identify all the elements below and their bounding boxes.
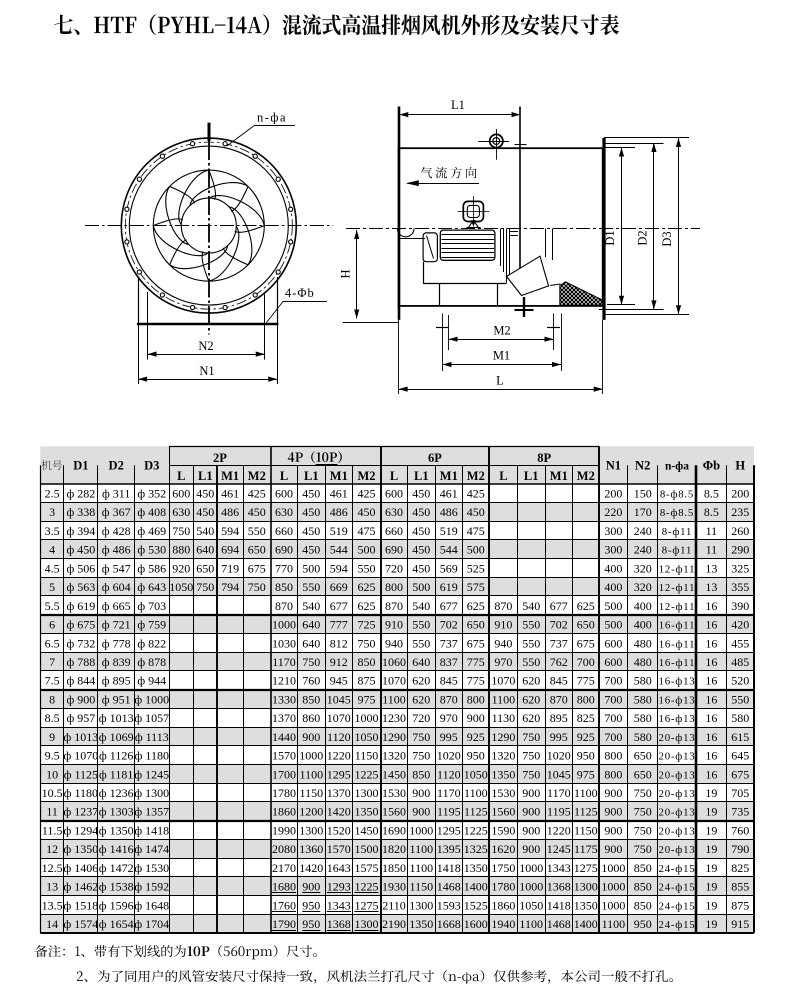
svg-text:700: 700: [604, 730, 622, 744]
svg-text:1370: 1370: [327, 786, 351, 800]
svg-text:461: 461: [221, 487, 239, 501]
svg-text:860: 860: [302, 711, 320, 725]
svg-text:575: 575: [467, 580, 485, 594]
svg-text:ф 675: ф 675: [67, 618, 96, 632]
svg-text:1468: 1468: [437, 880, 461, 894]
svg-text:619: 619: [440, 580, 458, 594]
svg-text:594: 594: [330, 561, 348, 575]
svg-text:550: 550: [522, 655, 540, 669]
svg-text:837: 837: [440, 655, 458, 669]
svg-text:1368: 1368: [327, 917, 351, 931]
svg-text:ф 1126: ф 1126: [99, 749, 133, 763]
svg-text:16: 16: [705, 730, 717, 744]
svg-text:1860: 1860: [272, 805, 296, 819]
svg-text:13: 13: [705, 561, 717, 575]
svg-text:10.5: 10.5: [42, 786, 63, 800]
svg-text:1420: 1420: [299, 861, 323, 875]
svg-text:13: 13: [705, 580, 717, 594]
svg-text:1643: 1643: [327, 861, 351, 875]
svg-text:19: 19: [705, 898, 717, 912]
svg-text:ф 547: ф 547: [102, 561, 131, 575]
svg-text:11: 11: [46, 805, 58, 819]
svg-text:625: 625: [358, 580, 376, 594]
svg-text:1440: 1440: [272, 730, 296, 744]
svg-text:1050: 1050: [169, 580, 193, 594]
svg-text:n-фa: n-фa: [257, 111, 287, 125]
svg-text:450: 450: [196, 487, 214, 501]
svg-text:ф 1592: ф 1592: [134, 880, 169, 894]
svg-text:1100: 1100: [464, 786, 488, 800]
svg-text:1350: 1350: [409, 917, 433, 931]
svg-text:L: L: [390, 469, 398, 483]
svg-text:ф 665: ф 665: [102, 599, 131, 613]
svg-text:420: 420: [731, 618, 749, 632]
svg-text:ф 1180: ф 1180: [64, 786, 98, 800]
svg-text:260: 260: [731, 524, 749, 538]
svg-text:ф 506: ф 506: [67, 561, 96, 575]
svg-text:ф 1013: ф 1013: [64, 730, 99, 744]
svg-text:1300: 1300: [409, 898, 433, 912]
svg-text:2170: 2170: [272, 861, 296, 875]
svg-text:ф 1070: ф 1070: [64, 749, 99, 763]
svg-text:1000: 1000: [299, 749, 323, 763]
svg-text:N1: N1: [606, 459, 621, 473]
svg-text:ф 311: ф 311: [102, 487, 130, 501]
svg-text:500: 500: [467, 543, 485, 557]
svg-text:950: 950: [467, 749, 485, 763]
svg-text:940: 940: [385, 636, 403, 650]
svg-text:24-ф15: 24-ф15: [659, 863, 696, 875]
svg-text:544: 544: [330, 543, 348, 557]
svg-text:16-ф13: 16-ф13: [659, 676, 696, 688]
svg-text:1368: 1368: [547, 880, 571, 894]
svg-text:1400: 1400: [574, 917, 598, 931]
svg-text:995: 995: [550, 730, 568, 744]
svg-text:M1: M1: [330, 469, 348, 483]
svg-text:2.5: 2.5: [45, 487, 60, 501]
svg-text:ф 1294: ф 1294: [64, 824, 99, 838]
svg-text:735: 735: [731, 805, 749, 819]
svg-text:ф 1357: ф 1357: [134, 805, 169, 819]
svg-text:775: 775: [467, 674, 485, 688]
svg-text:640: 640: [412, 655, 430, 669]
svg-text:400: 400: [634, 618, 652, 632]
svg-text:600: 600: [385, 487, 403, 501]
svg-text:1300: 1300: [574, 880, 598, 894]
svg-text:1420: 1420: [327, 805, 351, 819]
svg-text:ф 878: ф 878: [137, 655, 166, 669]
svg-text:650: 650: [467, 618, 485, 632]
svg-text:1000: 1000: [519, 880, 543, 894]
svg-text:750: 750: [634, 805, 652, 819]
svg-text:1000: 1000: [355, 711, 379, 725]
svg-text:M2: M2: [357, 469, 375, 483]
svg-text:24-ф15: 24-ф15: [659, 882, 696, 894]
svg-text:762: 762: [550, 655, 568, 669]
svg-text:1050: 1050: [355, 730, 379, 744]
svg-text:900: 900: [467, 711, 485, 725]
svg-text:580: 580: [634, 692, 652, 706]
svg-text:13.5: 13.5: [42, 898, 63, 912]
svg-text:3: 3: [49, 505, 55, 519]
svg-text:ф 1418: ф 1418: [134, 824, 169, 838]
svg-text:16-ф13: 16-ф13: [659, 713, 696, 725]
svg-text:ф 1236: ф 1236: [99, 786, 134, 800]
svg-text:1150: 1150: [574, 824, 598, 838]
svg-text:8-ф11: 8-ф11: [662, 545, 692, 557]
svg-text:L: L: [496, 373, 504, 387]
svg-text:8P: 8P: [537, 451, 551, 465]
svg-text:970: 970: [440, 711, 458, 725]
svg-text:975: 975: [577, 767, 595, 781]
svg-text:390: 390: [731, 599, 749, 613]
svg-text:6: 6: [49, 618, 55, 632]
svg-text:720: 720: [385, 561, 403, 575]
svg-text:1175: 1175: [574, 842, 598, 856]
svg-text:450: 450: [412, 487, 430, 501]
svg-text:1320: 1320: [382, 749, 406, 763]
svg-text:519: 519: [440, 524, 458, 538]
svg-text:12: 12: [46, 842, 58, 856]
svg-text:ф 1596: ф 1596: [99, 898, 134, 912]
svg-text:630: 630: [385, 505, 403, 519]
svg-text:L: L: [177, 469, 185, 483]
svg-text:850: 850: [358, 655, 376, 669]
svg-text:ф 428: ф 428: [102, 524, 131, 538]
svg-text:12.5: 12.5: [42, 861, 63, 875]
svg-text:ф 759: ф 759: [137, 618, 166, 632]
svg-text:540: 540: [412, 599, 430, 613]
svg-text:750: 750: [248, 580, 266, 594]
svg-text:1570: 1570: [327, 842, 351, 856]
svg-text:580: 580: [634, 730, 652, 744]
svg-text:ф 1416: ф 1416: [99, 842, 134, 856]
svg-text:702: 702: [440, 618, 458, 632]
svg-text:Φb: Φb: [703, 459, 720, 473]
svg-text:11: 11: [706, 543, 718, 557]
svg-text:ф 788: ф 788: [67, 655, 96, 669]
svg-text:1343: 1343: [547, 861, 571, 875]
svg-text:1780: 1780: [272, 786, 296, 800]
svg-text:L: L: [280, 469, 288, 483]
svg-text:850: 850: [634, 898, 652, 912]
svg-text:485: 485: [731, 655, 749, 669]
svg-text:150: 150: [634, 487, 652, 501]
svg-text:19: 19: [705, 842, 717, 856]
svg-text:20-ф13: 20-ф13: [659, 732, 696, 744]
svg-text:ф 1303: ф 1303: [99, 805, 134, 819]
svg-text:1170: 1170: [547, 786, 571, 800]
svg-text:1220: 1220: [547, 824, 571, 838]
svg-text:2080: 2080: [272, 842, 296, 856]
svg-text:ф 1406: ф 1406: [64, 861, 99, 875]
svg-text:650: 650: [634, 767, 652, 781]
svg-text:615: 615: [731, 730, 749, 744]
svg-text:1100: 1100: [410, 842, 434, 856]
svg-text:1275: 1275: [574, 861, 598, 875]
svg-text:750: 750: [522, 767, 540, 781]
svg-text:20-ф13: 20-ф13: [659, 826, 696, 838]
svg-text:1860: 1860: [491, 898, 515, 912]
svg-text:ф 1013: ф 1013: [99, 711, 134, 725]
svg-text:900: 900: [604, 805, 622, 819]
svg-text:900: 900: [522, 824, 540, 838]
svg-text:475: 475: [358, 524, 376, 538]
svg-text:200: 200: [731, 487, 749, 501]
svg-text:1400: 1400: [464, 880, 488, 894]
svg-text:ф 1113: ф 1113: [135, 730, 169, 744]
svg-text:D2: D2: [109, 459, 124, 473]
svg-text:794: 794: [221, 580, 239, 594]
svg-text:11: 11: [706, 524, 718, 538]
svg-text:M2: M2: [248, 469, 266, 483]
svg-text:550: 550: [248, 524, 266, 538]
svg-text:620: 620: [522, 711, 540, 725]
svg-text:550: 550: [302, 580, 320, 594]
svg-text:1275: 1275: [355, 898, 379, 912]
svg-text:630: 630: [172, 505, 190, 519]
svg-text:825: 825: [577, 711, 595, 725]
svg-text:950: 950: [302, 898, 320, 912]
svg-text:M1: M1: [221, 469, 239, 483]
svg-text:855: 855: [731, 880, 749, 894]
svg-text:450: 450: [302, 505, 320, 519]
svg-text:1343: 1343: [327, 898, 351, 912]
svg-text:677: 677: [550, 599, 568, 613]
svg-text:1020: 1020: [437, 749, 461, 763]
svg-text:1000: 1000: [601, 880, 625, 894]
svg-text:580: 580: [634, 674, 652, 688]
svg-text:1170: 1170: [437, 786, 461, 800]
svg-text:ф 367: ф 367: [102, 505, 131, 519]
svg-text:1225: 1225: [355, 880, 379, 894]
svg-text:400: 400: [604, 561, 622, 575]
svg-text:870: 870: [494, 599, 512, 613]
svg-text:1525: 1525: [464, 898, 488, 912]
svg-text:12-ф11: 12-ф11: [659, 601, 696, 613]
svg-text:620: 620: [412, 674, 430, 688]
svg-text:550: 550: [358, 561, 376, 575]
svg-text:870: 870: [550, 692, 568, 706]
svg-text:675: 675: [731, 767, 749, 781]
svg-text:486: 486: [221, 505, 239, 519]
svg-text:ф 394: ф 394: [67, 524, 96, 538]
svg-text:625: 625: [577, 599, 595, 613]
svg-text:900: 900: [412, 786, 430, 800]
svg-text:480: 480: [634, 636, 652, 650]
svg-text:ф 1654: ф 1654: [99, 917, 134, 931]
svg-text:5: 5: [49, 580, 55, 594]
svg-text:ф 1181: ф 1181: [99, 767, 133, 781]
svg-text:870: 870: [440, 692, 458, 706]
svg-text:1150: 1150: [300, 786, 324, 800]
svg-text:750: 750: [634, 786, 652, 800]
svg-text:N2: N2: [198, 339, 213, 353]
svg-text:775: 775: [577, 674, 595, 688]
svg-text:ф 619: ф 619: [67, 599, 96, 613]
svg-text:1045: 1045: [327, 692, 351, 706]
svg-text:1530: 1530: [382, 786, 406, 800]
svg-text:550: 550: [412, 636, 430, 650]
svg-text:ф 282: ф 282: [67, 487, 96, 501]
svg-text:ф 1518: ф 1518: [64, 898, 99, 912]
svg-text:690: 690: [275, 543, 293, 557]
svg-text:1210: 1210: [272, 674, 296, 688]
svg-text:550: 550: [522, 636, 540, 650]
svg-text:1070: 1070: [327, 711, 351, 725]
svg-text:1290: 1290: [491, 730, 515, 744]
svg-text:640: 640: [302, 618, 320, 632]
svg-text:1100: 1100: [410, 861, 434, 875]
svg-text:1125: 1125: [574, 805, 598, 819]
svg-text:895: 895: [550, 711, 568, 725]
svg-text:ф 1704: ф 1704: [134, 917, 169, 931]
svg-text:540: 540: [196, 524, 214, 538]
svg-text:945: 945: [330, 674, 348, 688]
svg-text:900: 900: [522, 805, 540, 819]
svg-text:702: 702: [550, 618, 568, 632]
svg-text:19: 19: [705, 805, 717, 819]
svg-text:500: 500: [358, 543, 376, 557]
svg-text:16: 16: [705, 767, 717, 781]
svg-text:650: 650: [634, 749, 652, 763]
svg-text:650: 650: [248, 543, 266, 557]
svg-text:16: 16: [705, 692, 717, 706]
svg-text:461: 461: [330, 487, 348, 501]
svg-text:694: 694: [221, 543, 239, 557]
svg-text:M2: M2: [577, 469, 595, 483]
svg-text:900: 900: [302, 880, 320, 894]
svg-text:1350: 1350: [574, 898, 598, 912]
svg-text:1295: 1295: [437, 824, 461, 838]
svg-text:19: 19: [705, 861, 717, 875]
svg-text:ф 721: ф 721: [102, 618, 131, 632]
svg-text:640: 640: [302, 636, 320, 650]
svg-text:20-ф13: 20-ф13: [659, 751, 696, 763]
svg-text:ф 1057: ф 1057: [134, 711, 169, 725]
svg-text:1790: 1790: [272, 917, 296, 931]
svg-text:ф 1180: ф 1180: [135, 749, 169, 763]
svg-text:325: 325: [731, 561, 749, 575]
svg-text:20-ф13: 20-ф13: [659, 769, 696, 781]
svg-text:925: 925: [467, 730, 485, 744]
svg-text:912: 912: [330, 655, 348, 669]
svg-text:1300: 1300: [355, 917, 379, 931]
svg-text:16: 16: [705, 711, 717, 725]
svg-text:ф 822: ф 822: [137, 636, 166, 650]
svg-text:1750: 1750: [491, 861, 515, 875]
svg-text:11.5: 11.5: [42, 824, 63, 838]
svg-text:1120: 1120: [437, 767, 461, 781]
svg-text:N2: N2: [635, 459, 650, 473]
svg-text:D3: D3: [660, 231, 674, 246]
svg-text:770: 770: [275, 561, 293, 575]
svg-text:13: 13: [46, 880, 58, 894]
svg-text:320: 320: [634, 580, 652, 594]
svg-text:6P: 6P: [428, 451, 442, 465]
svg-text:1360: 1360: [299, 842, 323, 856]
svg-text:ф 957: ф 957: [67, 711, 96, 725]
svg-text:920: 920: [172, 561, 190, 575]
svg-text:24-ф15: 24-ф15: [659, 919, 696, 931]
svg-text:915: 915: [731, 917, 749, 931]
svg-text:300: 300: [604, 543, 622, 557]
svg-text:519: 519: [330, 524, 348, 538]
svg-text:D3: D3: [144, 459, 159, 473]
svg-text:5.5: 5.5: [45, 599, 60, 613]
svg-text:970: 970: [494, 655, 512, 669]
svg-text:669: 669: [330, 580, 348, 594]
svg-text:580: 580: [634, 711, 652, 725]
svg-text:500: 500: [604, 618, 622, 632]
svg-text:16-ф13: 16-ф13: [659, 694, 696, 706]
svg-text:ф 1462: ф 1462: [64, 880, 99, 894]
svg-text:1195: 1195: [547, 805, 571, 819]
svg-text:20-ф13: 20-ф13: [659, 807, 696, 819]
svg-text:16: 16: [705, 749, 717, 763]
svg-text:1100: 1100: [602, 917, 626, 931]
svg-text:600: 600: [604, 655, 622, 669]
svg-text:705: 705: [731, 786, 749, 800]
svg-text:675: 675: [467, 636, 485, 650]
svg-text:900: 900: [604, 824, 622, 838]
svg-text:550: 550: [731, 692, 749, 706]
svg-text:777: 777: [330, 618, 348, 632]
svg-text:M1: M1: [440, 469, 458, 483]
svg-text:480: 480: [634, 655, 652, 669]
svg-text:1100: 1100: [574, 786, 598, 800]
svg-text:L1: L1: [451, 98, 465, 112]
svg-text:ф 643: ф 643: [137, 580, 166, 594]
svg-text:450: 450: [196, 505, 214, 519]
svg-text:850: 850: [275, 580, 293, 594]
svg-text:ф 486: ф 486: [102, 543, 131, 557]
svg-text:900: 900: [522, 842, 540, 856]
svg-text:1293: 1293: [327, 880, 351, 894]
svg-text:240: 240: [634, 524, 652, 538]
svg-text:19: 19: [705, 917, 717, 931]
svg-text:875: 875: [731, 898, 749, 912]
svg-text:790: 790: [731, 842, 749, 856]
svg-text:580: 580: [731, 711, 749, 725]
svg-text:450: 450: [412, 524, 430, 538]
svg-text:1690: 1690: [382, 824, 406, 838]
svg-text:870: 870: [385, 599, 403, 613]
svg-text:845: 845: [440, 674, 458, 688]
svg-text:1350: 1350: [464, 861, 488, 875]
svg-text:8-ф8.5: 8-ф8.5: [660, 507, 694, 519]
svg-text:1760: 1760: [272, 898, 296, 912]
svg-text:1120: 1120: [327, 730, 351, 744]
svg-text:1930: 1930: [382, 880, 406, 894]
svg-text:8.5: 8.5: [704, 505, 719, 519]
svg-text:1000: 1000: [601, 898, 625, 912]
svg-text:20-ф13: 20-ф13: [659, 788, 696, 800]
svg-text:M2: M2: [467, 469, 485, 483]
svg-text:16-ф11: 16-ф11: [659, 620, 696, 632]
svg-text:1600: 1600: [464, 917, 488, 931]
svg-text:ф 1237: ф 1237: [64, 805, 99, 819]
svg-text:750: 750: [412, 749, 430, 763]
svg-text:1850: 1850: [382, 861, 406, 875]
svg-text:1000: 1000: [601, 861, 625, 875]
svg-text:1030: 1030: [272, 636, 296, 650]
svg-text:800: 800: [577, 692, 595, 706]
svg-text:1020: 1020: [547, 749, 571, 763]
svg-text:16: 16: [705, 618, 717, 632]
svg-text:1450: 1450: [355, 824, 379, 838]
svg-text:630: 630: [275, 505, 293, 519]
